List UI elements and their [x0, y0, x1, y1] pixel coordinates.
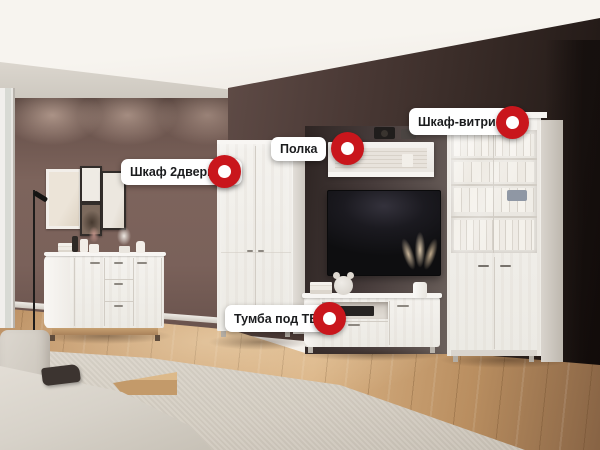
marker-center-dot — [506, 116, 519, 129]
marker-center-dot — [218, 165, 231, 178]
living-room-furniture-promo: Шкаф 2дверный Полка Шкаф-витрина Тумба п… — [0, 0, 600, 450]
commode — [44, 252, 168, 342]
hotspot-label-tv-stand[interactable]: Тумба под ТВ — [225, 305, 327, 332]
floor-lamp — [33, 190, 35, 332]
hotspot-label-shelf[interactable]: Полка — [271, 137, 326, 161]
display-cabinet — [447, 112, 569, 364]
decor-pampas-vase — [396, 230, 442, 298]
decor-books-vases — [56, 222, 152, 254]
picture-frame — [46, 169, 82, 229]
hotspot-marker-icon[interactable] — [313, 302, 346, 335]
tv-stand-handle — [348, 324, 360, 326]
decor-teddy-books — [310, 270, 370, 297]
commode-plinth — [52, 328, 158, 335]
hotspot-marker-icon[interactable] — [331, 132, 364, 165]
hotspot-label-text: Тумба под ТВ — [234, 312, 318, 326]
hotspot-marker-icon[interactable] — [496, 106, 529, 139]
marker-center-dot — [323, 312, 336, 325]
window — [0, 88, 15, 328]
marker-center-dot — [341, 142, 354, 155]
wardrobe-handle — [247, 250, 253, 252]
hotspot-label-text: Полка — [280, 142, 317, 156]
picture-frame — [80, 166, 102, 203]
hotspot-marker-icon[interactable] — [208, 155, 241, 188]
commode-handle — [90, 262, 100, 264]
glass-door — [451, 130, 537, 253]
cabinet-doors — [451, 257, 537, 349]
